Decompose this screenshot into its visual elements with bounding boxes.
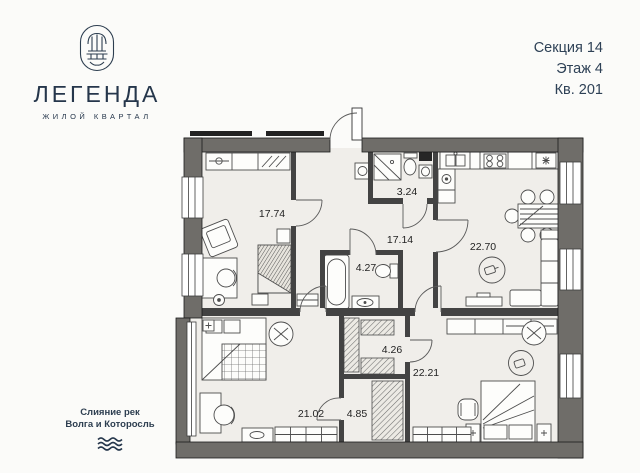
room-area-label: 4.26 — [382, 344, 403, 356]
entrance-door — [330, 108, 362, 140]
bathtub-icon — [324, 255, 349, 309]
room-area-label: 3.24 — [397, 186, 418, 198]
bed-icon-2 — [202, 318, 266, 380]
room-area-label: 17.74 — [259, 208, 285, 220]
location-note: Слияние рек Волга и Которосль — [50, 407, 170, 452]
cabinet-row-icon — [413, 427, 471, 442]
window-right-2 — [560, 249, 581, 290]
person-chair-icon — [522, 321, 546, 345]
shower-icon — [374, 154, 401, 180]
waves-icon — [97, 436, 123, 452]
chair-icon — [458, 399, 478, 420]
radiator-row-icon — [275, 427, 337, 442]
shoe-cabinet-icon — [297, 294, 318, 306]
room-area-label: 4.85 — [347, 408, 368, 420]
washer-icon — [355, 163, 370, 179]
window-left-1 — [182, 177, 203, 218]
window-right-1 — [560, 162, 581, 204]
room-area-label: 22.21 — [413, 367, 439, 379]
person-chair-icon-2 — [269, 322, 293, 346]
room-area-label: 17.14 — [387, 234, 413, 246]
window-left-2 — [182, 254, 203, 296]
window-left-3 — [187, 322, 196, 436]
floor-plan: 17.74 3.24 17.14 22.70 4.27 4.26 22.21 2… — [0, 0, 640, 473]
window-right-3 — [560, 354, 581, 398]
location-line-2: Волга и Которосль — [50, 419, 170, 431]
side-table-icon — [242, 428, 273, 442]
lintel-marks — [190, 131, 324, 136]
room-area-label: 4.27 — [356, 262, 377, 274]
room-area-label: 21.02 — [298, 408, 324, 420]
duct-block — [419, 152, 432, 161]
wardrobe-icon — [206, 153, 290, 170]
room-area-label: 22.70 — [470, 241, 496, 253]
floor-lamp-icon — [214, 295, 225, 306]
sink-icon — [419, 165, 432, 178]
sink-icon-2 — [352, 296, 379, 309]
toilet-icon — [404, 153, 417, 175]
toilet-icon-2 — [376, 264, 399, 278]
location-line-1: Слияние рек — [50, 407, 170, 419]
desk-icon — [200, 258, 237, 298]
